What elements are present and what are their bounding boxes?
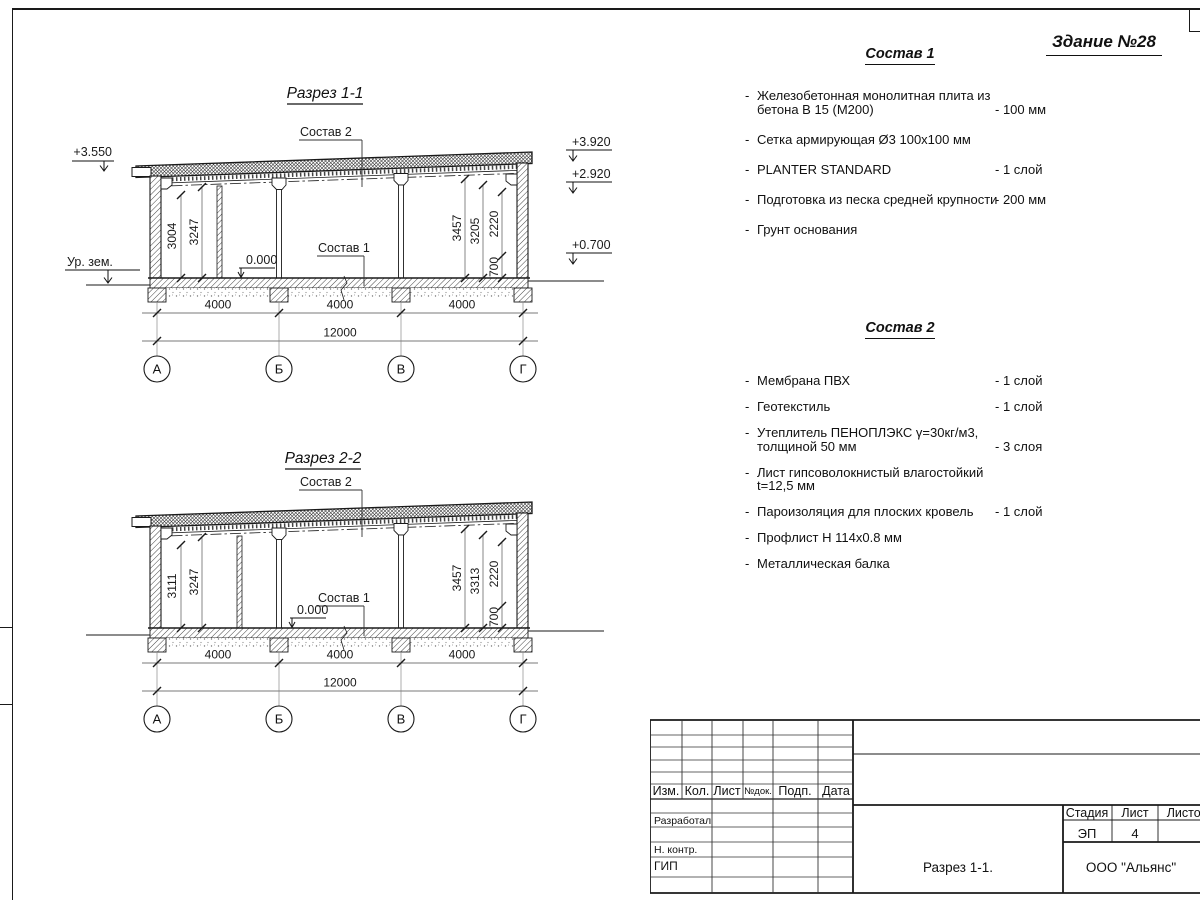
item-marker: - — [745, 89, 749, 103]
frame-corner-box — [1189, 8, 1190, 32]
tb-header: Подп. — [778, 784, 811, 798]
item-marker: - — [745, 374, 749, 388]
company-name: ООО "Альянс" — [1086, 860, 1176, 875]
dim-label: 2220 — [487, 560, 501, 587]
tb-header: Изм. — [653, 784, 680, 798]
sand-layer — [150, 288, 528, 298]
zero-level-label: 0.000 — [297, 603, 328, 617]
dim-label: 3457 — [450, 564, 464, 591]
leader-labels: Состав 2 Состав 1 0.000 — [238, 125, 370, 286]
grid-label: В — [397, 712, 406, 727]
dim-label: 3247 — [187, 218, 201, 245]
tb-header: Кол. — [685, 784, 710, 798]
item-value: - 1 слой — [995, 374, 1043, 388]
foundation-pad — [270, 638, 288, 652]
item-text: PLANTER STANDARD — [757, 162, 891, 177]
column — [399, 185, 404, 278]
grid-label: В — [397, 362, 406, 377]
grid-label: Б — [275, 712, 284, 727]
item-text: Сетка армирующая Ø3 100х100 мм — [757, 132, 971, 147]
sheets-label: Листов — [1167, 806, 1200, 820]
item-value: - 1 слой — [995, 400, 1043, 414]
left-wall — [150, 176, 161, 278]
item-text: Пароизоляция для плоских кровель — [757, 504, 974, 519]
material-item: - Металлическая балка — [745, 557, 1007, 571]
dim-label: 3111 — [165, 573, 179, 598]
dim-label: 4000 — [205, 298, 232, 312]
dim-label: 3004 — [165, 222, 179, 249]
stage-label: Стадия — [1066, 806, 1109, 820]
title-block: Изм. Кол. Лист №док. Подп. Дата Разработ… — [650, 715, 1200, 900]
grid-label: Г — [519, 712, 526, 727]
item-marker: - — [745, 223, 749, 237]
foundation-pad — [514, 288, 532, 302]
foundation-pad — [148, 288, 166, 302]
dim-label: 700 — [487, 257, 501, 277]
item-value: - 3 слоя — [995, 440, 1042, 454]
partition-wall — [237, 536, 242, 628]
grid-label: А — [153, 362, 162, 377]
sheet-label: Лист — [1121, 806, 1148, 820]
elevation-right: +2.920 — [572, 167, 611, 181]
leader-labels: Состав 2 Состав 1 0.000 — [289, 475, 370, 636]
dim-label: 3457 — [450, 214, 464, 241]
floor-composition-label: Состав 1 — [318, 241, 370, 255]
dim-label: 4000 — [205, 648, 232, 662]
item-text: Подготовка из песка средней крупности — [757, 192, 997, 207]
grid-label: А — [153, 712, 162, 727]
left-wall — [150, 526, 161, 628]
dim-label: 4000 — [449, 298, 476, 312]
material-item: - Грунт основания — [745, 223, 1007, 237]
roof — [132, 152, 532, 187]
column — [399, 535, 404, 628]
item-value: - 1 слой — [995, 505, 1043, 519]
sections-drawing: Разрез 1-1 — [0, 0, 660, 745]
foundation-pad — [514, 638, 532, 652]
ground-level-label: Ур. зем. — [67, 255, 113, 269]
column-capital — [394, 174, 408, 186]
vertical-dimensions: 3111 3247 3457 3313 2220 700 — [165, 525, 506, 632]
foundation-pad — [148, 638, 166, 652]
stage-value: ЭП — [1078, 826, 1097, 841]
column-capital — [272, 528, 286, 540]
list-title: Состав 1 — [745, 46, 1055, 62]
list-title: Состав 2 — [745, 320, 1055, 336]
elevation-left: +3.550 — [73, 145, 112, 159]
partition-wall — [217, 186, 222, 278]
foundation-pad — [392, 638, 410, 652]
dim-label: 12000 — [323, 326, 357, 340]
item-text: Мембрана ПВХ — [757, 373, 850, 388]
dim-label: 700 — [487, 607, 501, 627]
horizontal-dimensions: 4000 4000 4000 12000 А Б В Г — [142, 298, 538, 383]
material-item: - Подготовка из песка средней крупности … — [745, 193, 1007, 207]
item-text: Утеплитель ПЕНОПЛЭКС γ=30кг/м3, толщиной… — [757, 425, 978, 454]
elevation-right: +0.700 — [572, 238, 611, 252]
item-text: Геотекстиль — [757, 399, 830, 414]
item-marker: - — [745, 400, 749, 414]
material-item: - Железобетонная монолитная плита из бет… — [745, 89, 1007, 117]
elevation-right: +3.920 — [572, 135, 611, 149]
tb-header: №док. — [744, 786, 772, 797]
item-marker: - — [745, 531, 749, 545]
column — [277, 540, 282, 629]
item-value: - 1 слой — [995, 163, 1043, 177]
roof — [132, 502, 532, 537]
dim-label: 2220 — [487, 210, 501, 237]
right-wall — [517, 513, 528, 628]
dim-label: 4000 — [327, 298, 354, 312]
section-title: Разрез 1-1 — [287, 85, 364, 102]
item-text: Железобетонная монолитная плита из бетон… — [757, 88, 991, 117]
sand-layer — [150, 638, 528, 648]
dim-label: 12000 — [323, 676, 357, 690]
zero-level-label: 0.000 — [246, 253, 277, 267]
item-value: - 100 мм — [995, 103, 1046, 117]
item-text: Лист гипсоволокнистый влагостойкий t=12,… — [757, 465, 983, 494]
vertical-dimensions: 3004 3247 3457 3205 2220 700 — [165, 175, 506, 282]
section-title: Разрез 2-2 — [285, 450, 362, 467]
right-wall — [517, 163, 528, 278]
item-marker: - — [745, 163, 749, 177]
grid-label: Г — [519, 362, 526, 377]
column-capital — [272, 178, 286, 190]
composition-1-list: Состав 1 - Железобетонная монолитная пли… — [745, 46, 1055, 253]
tb-header: Дата — [822, 784, 850, 798]
building-title: Здание №28 — [1046, 32, 1162, 56]
section-2-2: Разрез 2-2 — [86, 450, 604, 732]
tb-sign-row: ГИП — [654, 859, 678, 873]
document-title: Разрез 1-1. — [923, 860, 993, 875]
item-marker: - — [745, 557, 749, 571]
item-text: Металлическая балка — [757, 556, 890, 571]
roof-composition-label: Состав 2 — [300, 475, 352, 489]
material-item: - Утеплитель ПЕНОПЛЭКС γ=30кг/м3, толщин… — [745, 426, 1007, 453]
foundation-pad — [270, 288, 288, 302]
material-item: - Мембрана ПВХ - 1 слой — [745, 374, 1007, 388]
material-item: - PLANTER STANDARD - 1 слой — [745, 163, 1007, 177]
frame-corner-box — [1189, 31, 1200, 32]
item-marker: - — [745, 505, 749, 519]
material-item: - Лист гипсоволокнистый влагостойкий t=1… — [745, 466, 1007, 493]
drawing-sheet: Здание №28 Разрез 1-1 — [0, 0, 1200, 900]
item-marker: - — [745, 193, 749, 207]
item-marker: - — [745, 466, 749, 480]
section-1-1: Разрез 1-1 — [65, 85, 612, 382]
tb-sign-row: Н. контр. — [654, 844, 697, 856]
item-value: - 200 мм — [995, 193, 1046, 207]
dim-label: 4000 — [449, 648, 476, 662]
material-item: - Сетка армирующая Ø3 100х100 мм — [745, 133, 1007, 147]
item-text: Грунт основания — [757, 222, 857, 237]
item-marker: - — [745, 426, 749, 440]
dim-label: 3313 — [468, 567, 482, 594]
material-item: - Геотекстиль - 1 слой — [745, 400, 1007, 414]
sheet-value: 4 — [1131, 826, 1138, 841]
dim-label: 3205 — [468, 217, 482, 244]
item-marker: - — [745, 133, 749, 147]
foundation-pad — [392, 288, 410, 302]
composition-2-list: Состав 2 - Мембрана ПВХ - 1 слой - Геоте… — [745, 320, 1055, 583]
roof-composition-label: Состав 2 — [300, 125, 352, 139]
grid-label: Б — [275, 362, 284, 377]
column-capital — [394, 524, 408, 536]
material-item: - Пароизоляция для плоских кровель - 1 с… — [745, 505, 1007, 519]
item-text: Профлист Н 114х0.8 мм — [757, 530, 902, 545]
dim-label: 4000 — [327, 648, 354, 662]
tb-sign-row: Разработал — [654, 815, 711, 827]
tb-header: Лист — [713, 784, 740, 798]
material-item: - Профлист Н 114х0.8 мм — [745, 531, 1007, 545]
horizontal-dimensions: 4000 4000 4000 12000 А Б В Г — [142, 648, 538, 733]
dim-label: 3247 — [187, 568, 201, 595]
